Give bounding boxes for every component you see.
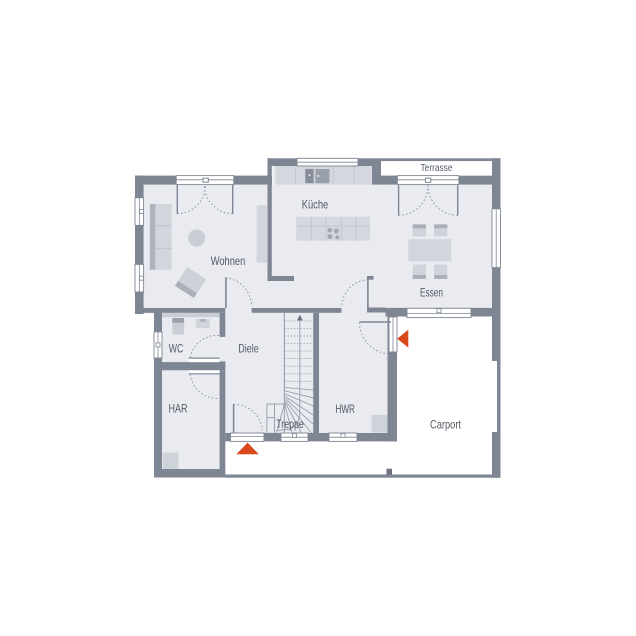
svg-text:Terrasse: Terrasse	[421, 162, 453, 174]
svg-text:Carport: Carport	[430, 418, 462, 432]
svg-text:Treppe: Treppe	[276, 417, 304, 431]
svg-text:Wohnen: Wohnen	[211, 254, 246, 268]
svg-text:Essen: Essen	[420, 286, 443, 300]
svg-text:Diele: Diele	[238, 342, 259, 356]
svg-text:HWR: HWR	[335, 402, 355, 416]
svg-text:HAR: HAR	[169, 402, 188, 416]
svg-text:Küche: Küche	[302, 198, 329, 212]
svg-text:WC: WC	[169, 342, 184, 356]
